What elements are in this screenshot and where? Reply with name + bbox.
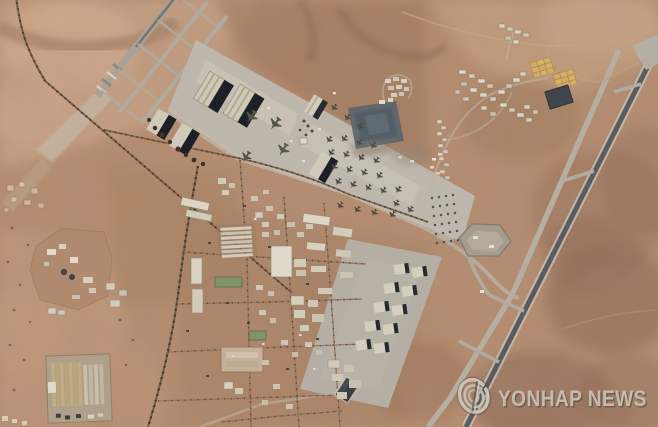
svg-text:YONHAP NEWS: YONHAP NEWS xyxy=(498,387,647,412)
